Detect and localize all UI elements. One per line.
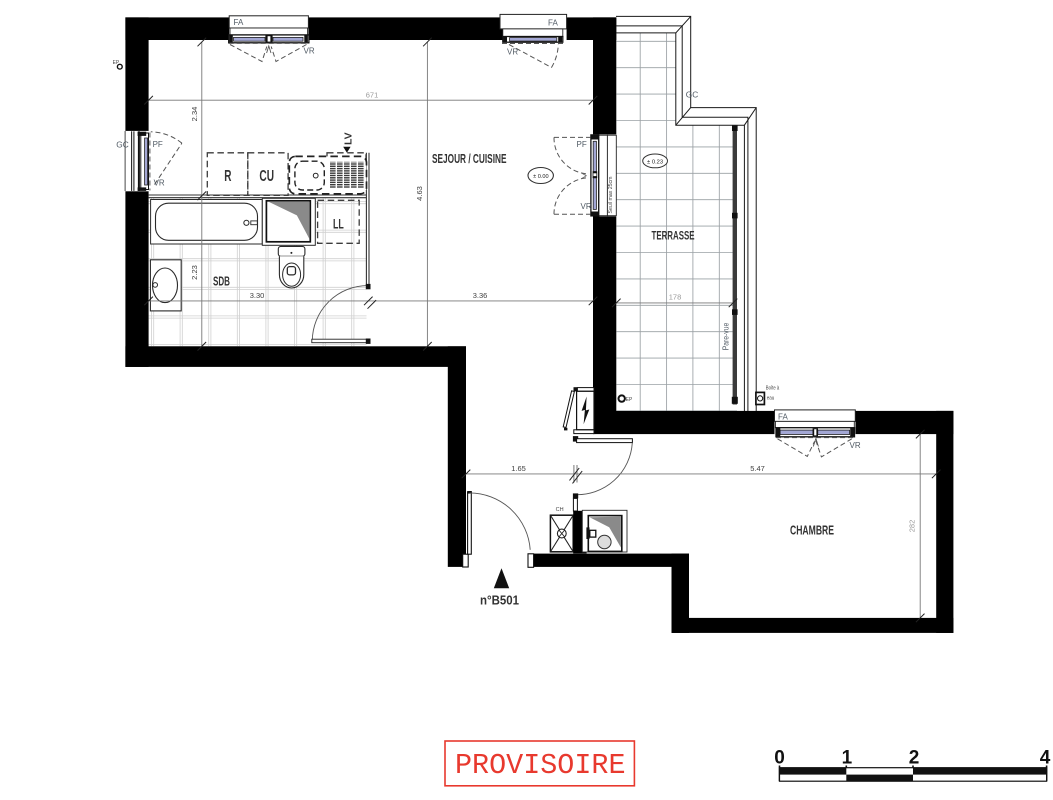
svg-text:GC: GC — [116, 140, 129, 149]
svg-text:VR: VR — [850, 441, 861, 450]
svg-text:VR: VR — [154, 178, 165, 187]
svg-text:Boîte à: Boîte à — [766, 386, 780, 392]
svg-text:5.47: 5.47 — [750, 464, 765, 473]
svg-text:VR: VR — [507, 48, 518, 57]
svg-text:178: 178 — [669, 293, 682, 302]
svg-text:2.34: 2.34 — [190, 107, 199, 122]
svg-text:VR: VR — [581, 202, 592, 211]
svg-text:4: 4 — [1040, 748, 1051, 769]
svg-text:1: 1 — [842, 748, 853, 769]
svg-text:2: 2 — [909, 748, 920, 769]
svg-text:3.30: 3.30 — [250, 291, 265, 300]
svg-text:SEJOUR / CUISINE: SEJOUR / CUISINE — [432, 151, 507, 166]
svg-text:282: 282 — [908, 520, 917, 533]
svg-text:TERRASSE: TERRASSE — [652, 228, 695, 242]
svg-text:LL: LL — [333, 216, 344, 231]
svg-text:LV: LV — [343, 132, 355, 145]
svg-text:± 0.00: ± 0.00 — [533, 174, 549, 180]
svg-text:Pare-vue: Pare-vue — [722, 322, 731, 350]
svg-text:4.63: 4.63 — [415, 186, 424, 201]
svg-text:CU: CU — [259, 168, 274, 185]
svg-text:PF: PF — [577, 140, 587, 149]
svg-text:eau: eau — [767, 396, 775, 402]
svg-text:n°B501: n°B501 — [480, 594, 519, 608]
svg-text:EP: EP — [113, 60, 120, 66]
svg-text:FA: FA — [778, 412, 788, 421]
svg-text:PROVISOIRE: PROVISOIRE — [455, 749, 626, 782]
svg-text:0: 0 — [774, 748, 785, 769]
svg-text:± 0.23: ± 0.23 — [647, 159, 663, 165]
svg-text:GC: GC — [686, 91, 699, 100]
svg-text:FA: FA — [234, 18, 244, 27]
svg-text:CHAMBRE: CHAMBRE — [790, 523, 834, 537]
svg-text:VR: VR — [304, 47, 315, 56]
svg-text:PF: PF — [153, 140, 163, 149]
svg-text:SDB: SDB — [213, 275, 230, 289]
svg-text:FA: FA — [548, 19, 558, 28]
svg-text:EP: EP — [626, 397, 633, 403]
svg-text:671: 671 — [366, 91, 379, 100]
svg-text:2.23: 2.23 — [190, 265, 199, 280]
svg-text:CH: CH — [556, 507, 564, 513]
svg-text:1.65: 1.65 — [511, 464, 526, 473]
svg-text:R: R — [224, 168, 231, 185]
svg-text:Seuil max 25cm: Seuil max 25cm — [608, 177, 614, 214]
svg-text:3.36: 3.36 — [473, 291, 488, 300]
